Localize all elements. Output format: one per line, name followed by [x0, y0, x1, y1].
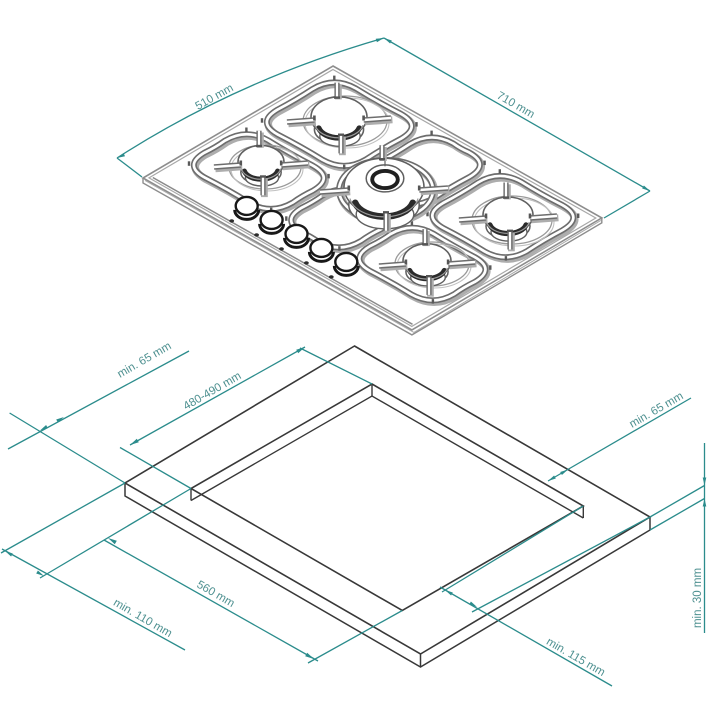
svg-text:min. 30 mm: min. 30 mm: [692, 568, 704, 628]
